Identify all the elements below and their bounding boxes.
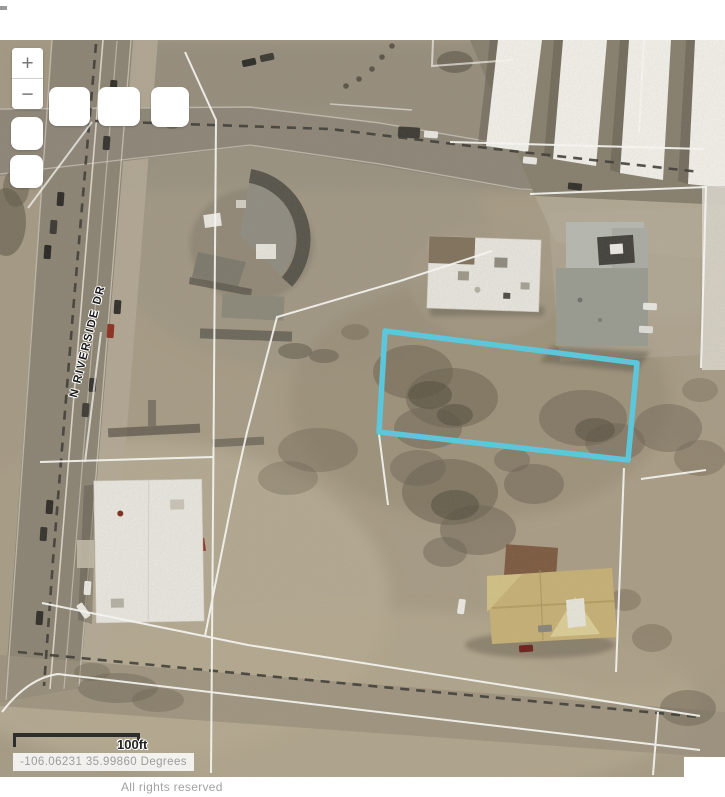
map-application-window: + − N RIVERSIDE DR 100ft -106.06231 35.9… xyxy=(0,0,725,797)
toolbar-button-2[interactable] xyxy=(98,87,140,126)
zoom-out-button[interactable]: − xyxy=(12,79,43,109)
scale-bar-left-tick xyxy=(13,733,16,747)
imagery-grain xyxy=(0,40,725,777)
toolbar-button-5[interactable] xyxy=(10,155,43,188)
zoom-control: + − xyxy=(12,48,43,109)
coordinates-text: -106.06231 35.99860 Degrees xyxy=(20,756,187,768)
coordinates-readout: -106.06231 35.99860 Degrees xyxy=(13,753,194,771)
zoom-in-button[interactable]: + xyxy=(12,48,43,78)
aerial-imagery xyxy=(0,40,725,797)
missing-tile-notch xyxy=(684,757,725,778)
window-edge-artifact xyxy=(0,6,7,10)
toolbar-button-4[interactable] xyxy=(11,117,43,150)
scale-label: 100ft xyxy=(117,737,147,752)
toolbar-button-3[interactable] xyxy=(151,87,189,127)
toolbar-button-1[interactable] xyxy=(49,87,90,126)
attribution-text: All rights reserved xyxy=(121,780,223,794)
